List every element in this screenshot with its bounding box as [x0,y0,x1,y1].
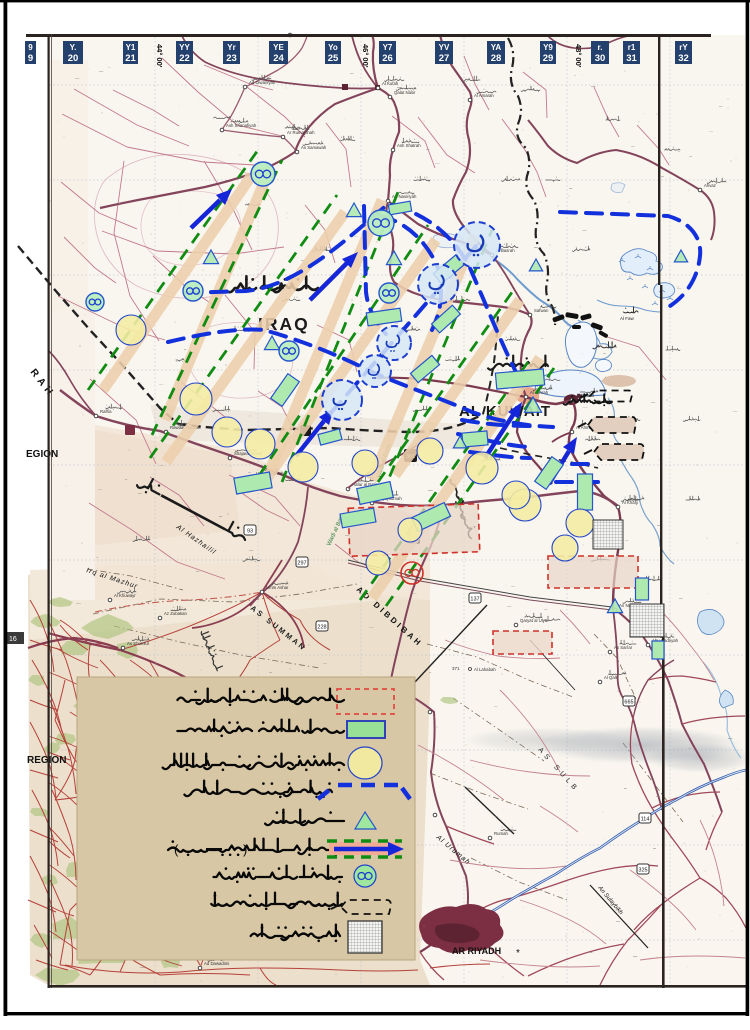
svg-text:AR RIYADH: AR RIYADH [452,946,501,956]
svg-text:Qalat Nasir: Qalat Nasir [394,90,416,95]
svg-text:As Shumlul: As Shumlul [127,641,149,646]
svg-text:REGION: REGION [27,755,66,766]
svg-text:29: 29 [543,53,554,64]
svg-text:YA: YA [491,43,502,52]
svg-text:137: 137 [470,597,479,603]
svg-text:YV: YV [439,43,450,52]
svg-text:Al Faw: Al Faw [620,316,635,321]
svg-text:Ad Dawadimi: Ad Dawadimi [204,961,229,966]
svg-text:Az Zubakan: Az Zubakan [164,611,188,616]
svg-text:Ad Diwaniyah: Ad Diwaniyah [249,80,276,85]
svg-text:As Sarrar: As Sarrar [614,645,633,650]
svg-text:9: 9 [28,43,33,52]
svg-text:44° 00': 44° 00' [155,44,164,68]
svg-text:rY: rY [679,43,688,52]
svg-text:665: 665 [624,700,633,706]
svg-text:48° 00': 48° 00' [574,44,583,68]
svg-text:24: 24 [273,53,284,64]
svg-text:25: 25 [328,53,339,64]
svg-text:228: 228 [317,625,326,631]
svg-text:(: ( [174,842,179,857]
svg-text:46° 00': 46° 00' [361,44,370,68]
svg-text:YY: YY [179,43,190,52]
svg-text:21: 21 [125,53,136,64]
svg-text:r1: r1 [628,43,636,52]
svg-text:Al Lahabah: Al Lahabah [474,667,496,672]
svg-text:Y7: Y7 [383,43,393,52]
svg-text:31: 31 [626,53,637,64]
svg-text:16: 16 [9,636,17,643]
svg-text:26: 26 [382,53,393,64]
svg-text:9: 9 [28,53,33,64]
svg-text:Yr: Yr [227,43,235,52]
svg-text:As Samawah: As Samawah [301,145,327,150]
svg-text:20: 20 [68,53,79,64]
svg-text:): ) [243,842,247,857]
svg-text:YE: YE [273,43,284,52]
svg-text:Ar Rumaythah: Ar Rumaythah [287,130,315,135]
svg-text:371: 371 [452,666,460,671]
svg-text:325: 325 [638,868,647,874]
svg-text:23: 23 [226,53,237,64]
svg-text:Al Amarah: Al Amarah [474,93,494,98]
svg-text:Safwan: Safwan [534,308,549,313]
svg-text:Al Qalt: Al Qalt [604,675,618,680]
svg-text:Ash Shatrah: Ash Shatrah [397,143,421,148]
svg-text:32: 32 [678,53,689,64]
svg-text:Ahvaz: Ahvaz [704,183,716,188]
svg-text:Rafha: Rafha [100,409,112,414]
svg-text:Y1: Y1 [126,43,136,52]
svg-text:28: 28 [491,53,502,64]
svg-text:Al Khuwayr: Al Khuwayr [114,593,136,598]
svg-text:*: * [516,948,520,959]
svg-text:93: 93 [247,529,253,535]
svg-text:Yo: Yo [328,43,338,52]
svg-text:27: 27 [439,53,450,64]
svg-text:Y.: Y. [70,43,77,52]
svg-text:22: 22 [179,53,190,64]
svg-text:Rumah: Rumah [494,831,508,836]
svg-text:114: 114 [641,817,650,823]
svg-text:Y9: Y9 [543,43,553,52]
svg-text:r.: r. [598,43,603,52]
svg-text:30: 30 [595,53,606,64]
svg-text:297: 297 [297,561,306,567]
svg-text:Umm Ashar: Umm Ashar [266,585,289,590]
svg-text:EGION: EGION [26,449,58,460]
svg-text:Ash Shanafiyah: Ash Shanafiyah [226,123,257,128]
